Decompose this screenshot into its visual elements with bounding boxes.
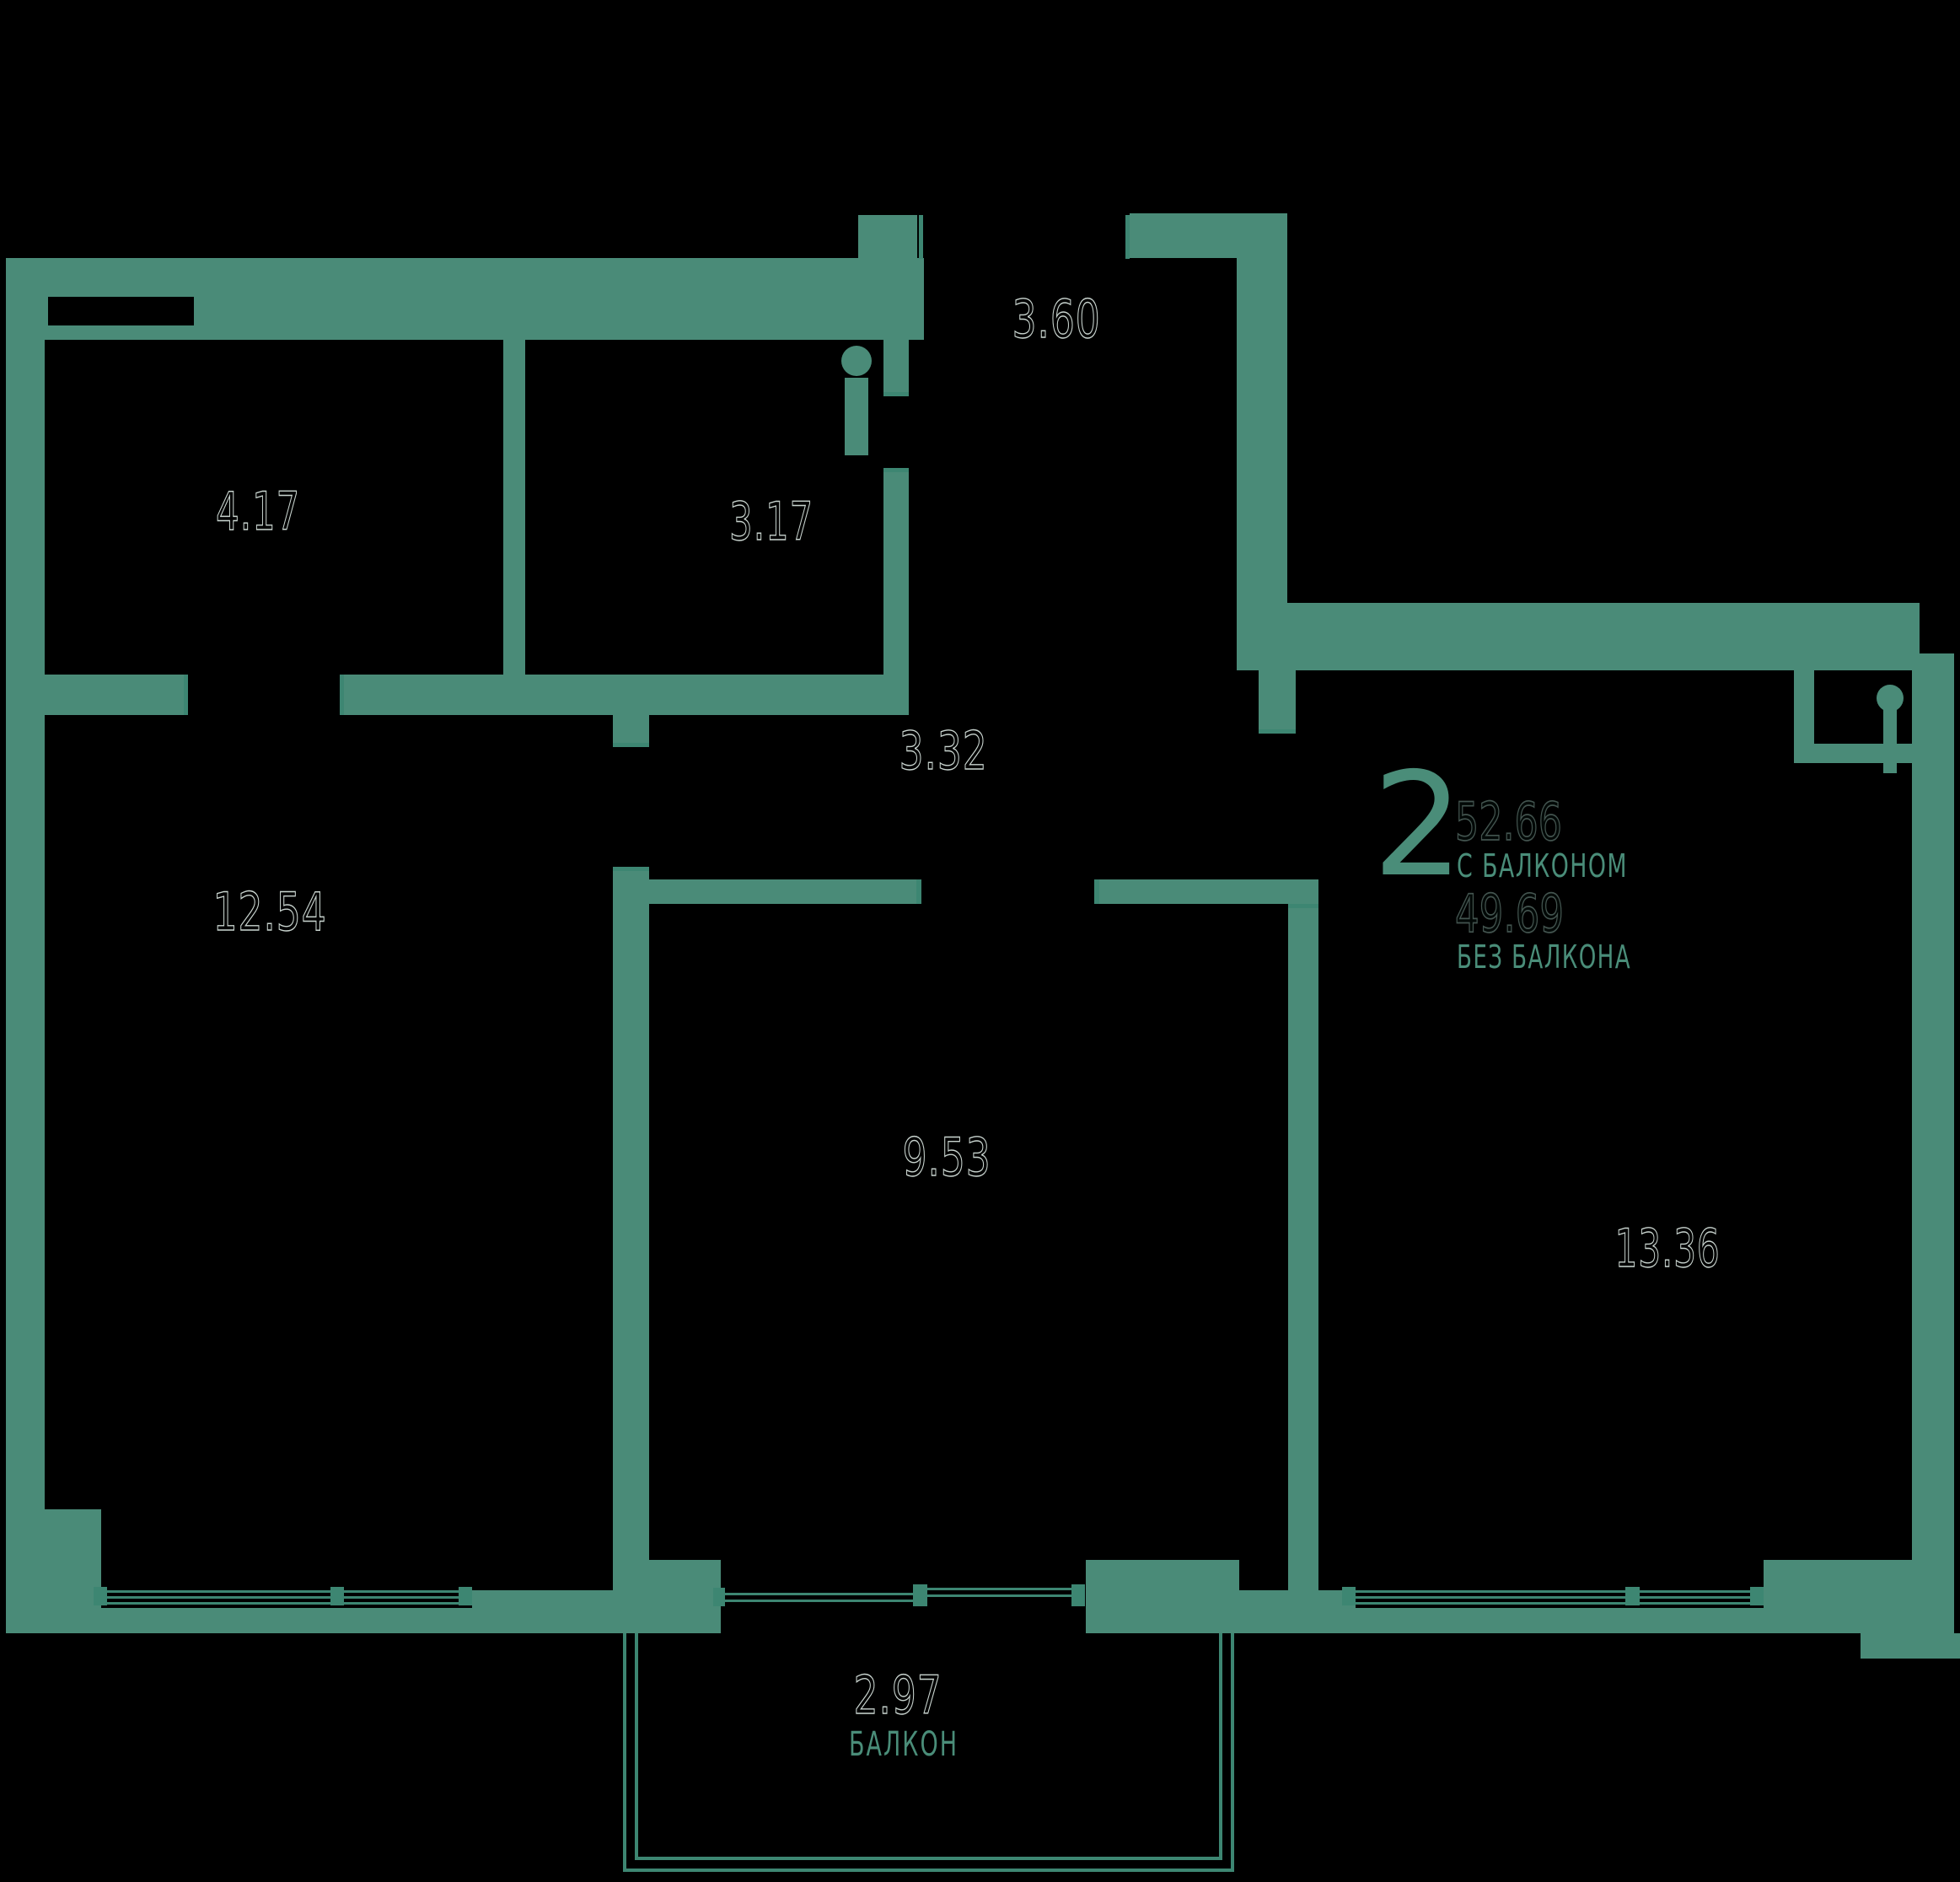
wall-left-outer [6,258,45,1516]
wall-corridor-bottom-right [1094,879,1318,904]
door-leaf [845,378,868,455]
wall-bathroom-right-lower [883,472,909,715]
room-area-label: 9.53 [903,1127,991,1188]
jamb-bathroom-bottom [883,468,909,472]
wall-pier-bottom-left [6,1509,101,1633]
wall-living-kitchen-upper [613,675,649,747]
entrance-door-icon [1794,670,1912,773]
jamb-living-bottom [613,867,649,871]
jamb-bathroom-top [883,392,909,396]
rooms-count: 2 [1372,742,1463,909]
door-knob-icon [841,346,872,376]
wall-right-outer [1912,653,1954,1633]
wall-bottom-solid-left [472,1590,613,1633]
with-balcony-label: С БАЛКОНОМ [1457,847,1628,885]
apartment-floor-plan: 4.17 3.17 3.60 3.32 12.54 9.53 13.36 2.9… [0,0,1960,1882]
wall-balcony-pier-right [1086,1560,1239,1633]
room-area-label: 12.54 [213,881,327,943]
jamb-kitchen-left [916,879,921,904]
wall-entry-vertical [1237,213,1287,670]
jamb-storage-left [184,675,188,715]
balcony-door-icon [713,1584,1085,1606]
door-frame-side [1794,670,1814,763]
wall-niche [48,297,194,325]
wall-pier-bottom-right [1764,1560,1954,1633]
door-opening-storage [188,675,340,715]
area-with-balcony: 52.66 [1455,791,1562,852]
without-balcony-label: БЕЗ БАЛКОНА [1457,938,1631,976]
summary-block: 2 52.66 С БАЛКОНОМ 49.69 БЕЗ БАЛКОНА [1372,742,1631,976]
room-area-label: 3.17 [729,491,814,552]
room-area-label: 3.60 [1012,288,1101,350]
wall-partition-top-rooms [44,675,909,715]
jamb-kitchen-right [1094,879,1099,904]
wall-corner-step-right [1861,1633,1960,1659]
window-right-icon [1342,1587,1764,1605]
balcony-labels: 2.97 БАЛКОН [849,1664,959,1764]
jamb-living-top [613,743,649,747]
balcony-name-label: БАЛКОН [849,1725,959,1764]
room-area-label: 4.17 [216,481,300,542]
door-leaf [1883,708,1897,773]
area-without-balcony: 49.69 [1455,883,1564,944]
balcony-area-label: 2.97 [854,1664,942,1726]
wall-divider-storage-bathroom [503,340,525,675]
bathroom-door-icon [841,346,872,455]
jamb-bedroom-top [1259,729,1296,734]
wall-balcony-pier-left [613,1560,721,1633]
door-knob-icon [1877,685,1904,712]
wall-entry-pier-left [858,215,917,259]
wall-corridor-bottom-left [643,879,921,904]
jamb-storage-right [340,675,344,715]
door-frame-bottom [1814,744,1912,763]
wall-bathroom-right-upper [883,340,909,396]
window-left-icon [94,1587,472,1605]
wall-corridor-stub [1259,670,1296,734]
jamb-bedroom-bottom [1288,904,1318,908]
room-area-label: 13.36 [1615,1218,1721,1279]
wall-entry-pier-right [1130,213,1249,258]
wall-living-kitchen-lower [613,867,649,1590]
room-area-labels: 4.17 3.17 3.60 3.32 12.54 9.53 13.36 [213,288,1721,1279]
jamb-entry-right [1125,215,1130,259]
wall-kitchen-bedroom [1288,904,1318,1590]
jamb-entry-left [919,215,923,259]
room-area-label: 3.32 [899,720,988,782]
wall-bedroom-top [1287,603,1920,670]
